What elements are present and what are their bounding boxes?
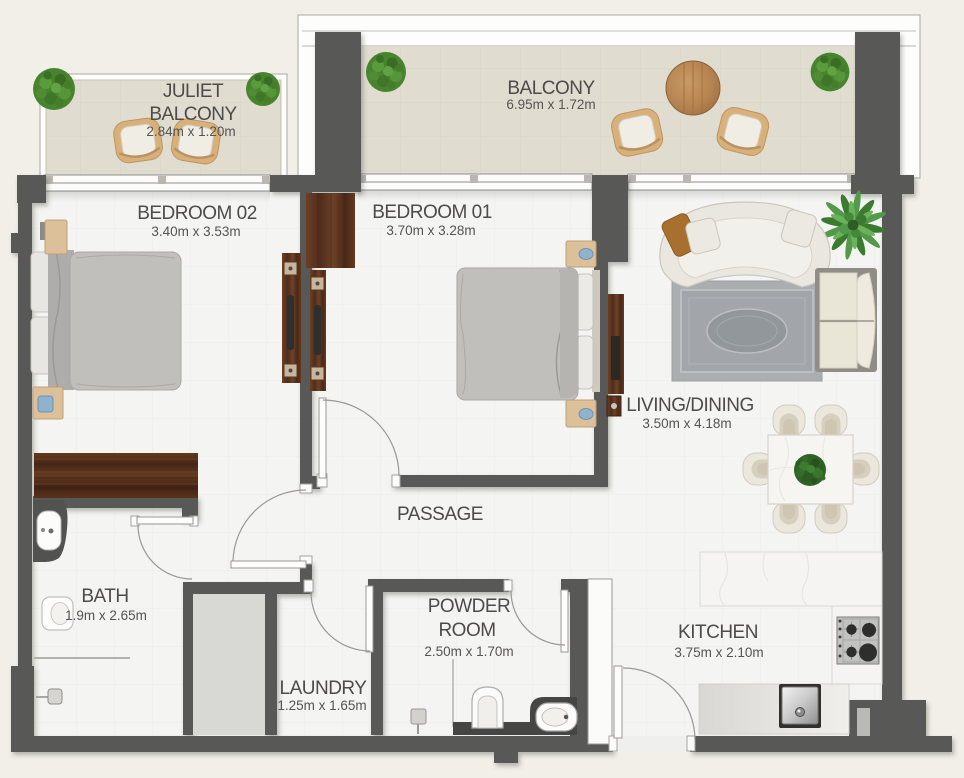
svg-text:POWDER: POWDER [428,596,511,617]
svg-text:PASSAGE: PASSAGE [397,504,483,525]
svg-text:3.50m x 4.18m: 3.50m x 4.18m [642,416,731,431]
svg-text:ROOM: ROOM [438,620,495,641]
svg-text:BATH: BATH [81,586,128,607]
svg-text:3.75m x 2.10m: 3.75m x 2.10m [674,645,763,660]
svg-text:LIVING/DINING: LIVING/DINING [626,395,754,416]
svg-text:6.95m x 1.72m: 6.95m x 1.72m [506,97,595,112]
svg-text:2.50m x 1.70m: 2.50m x 1.70m [424,644,513,659]
svg-text:BALCONY: BALCONY [507,78,595,99]
svg-text:3.40m x 3.53m: 3.40m x 3.53m [151,224,240,239]
svg-text:BEDROOM 02: BEDROOM 02 [137,203,257,224]
svg-text:3.70m x 3.28m: 3.70m x 3.28m [386,223,475,238]
svg-text:1.25m x 1.65m: 1.25m x 1.65m [277,698,366,713]
svg-text:KITCHEN: KITCHEN [678,622,758,643]
svg-text:1.9m x 2.65m: 1.9m x 2.65m [65,608,147,623]
svg-text:JULIET: JULIET [163,81,224,102]
svg-text:2.84m x 1.20m: 2.84m x 1.20m [146,124,235,139]
svg-text:LAUNDRY: LAUNDRY [280,678,368,699]
svg-text:BALCONY: BALCONY [149,104,237,125]
svg-text:BEDROOM 01: BEDROOM 01 [372,202,492,223]
